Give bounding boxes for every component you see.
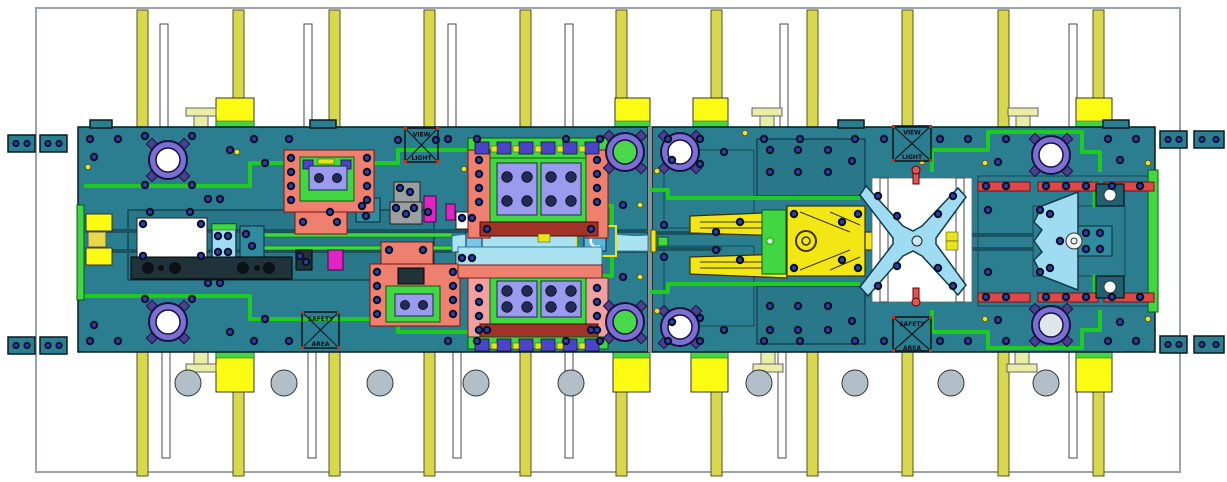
bolt [451, 284, 455, 288]
die-button-hole [566, 172, 576, 182]
roller [271, 370, 297, 396]
bolt [1004, 295, 1008, 299]
bolt [396, 138, 400, 142]
bolt [289, 198, 293, 202]
bolt [621, 275, 625, 279]
sensor-dot [767, 238, 774, 245]
bolt [228, 148, 232, 152]
tab-bolt [25, 344, 29, 348]
bolt [1004, 184, 1008, 188]
pillar [807, 10, 818, 127]
mount-tab [8, 337, 35, 354]
bolt [1004, 137, 1008, 141]
bolt [206, 197, 210, 201]
die-tab [563, 142, 577, 154]
pillar [998, 10, 1009, 127]
bolt [446, 137, 450, 141]
tab-bolt [25, 142, 29, 146]
die-tab-spacer [557, 343, 563, 349]
t-clamp [194, 116, 208, 128]
roller [463, 370, 489, 396]
bolt [662, 255, 666, 259]
tab-bolt [1214, 343, 1218, 347]
guide-bar [448, 24, 456, 127]
bolt [895, 264, 899, 268]
t-clamp [1015, 352, 1029, 365]
bolt [796, 170, 800, 174]
t-clamp [760, 116, 774, 128]
bolt [1058, 239, 1062, 243]
bolt [698, 316, 702, 320]
bolt [404, 212, 408, 216]
bolt [840, 220, 844, 224]
bolt [1106, 137, 1110, 141]
bolt [92, 155, 96, 159]
tab-bolt [14, 142, 18, 146]
bolt [365, 170, 369, 174]
tab-bolt [1177, 343, 1181, 347]
bolt [1134, 137, 1138, 141]
bolt [1084, 231, 1088, 235]
pillar [520, 352, 531, 476]
bolt [1138, 295, 1142, 299]
marker-text: SAFETY [308, 316, 334, 323]
bolt [252, 339, 256, 343]
bolt [850, 159, 854, 163]
lifter-hole [263, 262, 275, 274]
bolt [148, 210, 152, 214]
bolt [360, 204, 364, 208]
bolt [289, 156, 293, 160]
bolt [1064, 295, 1068, 299]
bolt [250, 244, 254, 248]
tab-bolt [1214, 138, 1218, 142]
bolt [768, 304, 772, 308]
tab-bolt [57, 344, 61, 348]
tab-bolt [1166, 343, 1170, 347]
bolt [768, 328, 772, 332]
edge-tab [838, 120, 864, 128]
die-tab [541, 339, 555, 351]
bolt [365, 198, 369, 202]
entry-guide [88, 232, 106, 247]
dowel-dot [982, 316, 988, 322]
bolt [1134, 339, 1138, 343]
bolt [876, 194, 880, 198]
bolt [460, 256, 464, 260]
bolt [826, 304, 830, 308]
t-clamp [1008, 108, 1038, 116]
lifter-hole [254, 265, 260, 271]
bolt [768, 170, 772, 174]
stop-block-strip [615, 121, 650, 127]
bolt [1084, 247, 1088, 251]
bolt [936, 212, 940, 216]
bushing-bore [613, 140, 637, 164]
bolt [190, 297, 194, 301]
bolt [762, 137, 766, 141]
guide-bar [162, 352, 170, 458]
bolt [141, 254, 145, 258]
bolt [365, 184, 369, 188]
bolt [936, 266, 940, 270]
bolt [826, 328, 830, 332]
bolt [796, 328, 800, 332]
bushing-bore [156, 310, 180, 334]
die-tab [519, 142, 533, 154]
green-edge-bar [77, 205, 84, 300]
bolt [141, 222, 145, 226]
bolt [564, 339, 568, 343]
die-button-hole [522, 286, 532, 296]
bolt [190, 134, 194, 138]
die-tab-spacer [535, 146, 541, 152]
bolt [670, 320, 674, 324]
pillar [137, 352, 148, 476]
bolt [595, 200, 599, 204]
bolt [470, 216, 474, 220]
die-tab-spacer [557, 146, 563, 152]
bolt [143, 134, 147, 138]
bolt [477, 314, 481, 318]
bolt [477, 286, 481, 290]
bolt [768, 148, 772, 152]
bolt [252, 137, 256, 141]
roller [746, 370, 772, 396]
bolt [1118, 158, 1122, 162]
bolt [1038, 208, 1042, 212]
dowel-dot [982, 160, 988, 166]
roller [175, 370, 201, 396]
bolt [188, 210, 192, 214]
bolt [738, 220, 742, 224]
bolt [143, 297, 147, 301]
entry-plate [137, 218, 207, 262]
bolt [421, 248, 425, 252]
bolt [595, 186, 599, 190]
bolt [477, 300, 481, 304]
die-button-hole [502, 286, 512, 296]
bolt [301, 220, 305, 224]
bolt [876, 284, 880, 288]
tab-bolt [46, 142, 50, 146]
bolt [762, 339, 766, 343]
bolt [621, 203, 625, 207]
bolt [1110, 184, 1114, 188]
guide-bar [565, 24, 573, 127]
tab-bolt [1177, 138, 1181, 142]
bolt [1084, 295, 1088, 299]
bolt [218, 281, 222, 285]
bolt [595, 286, 599, 290]
stop-block-strip [691, 352, 728, 358]
bolt [218, 197, 222, 201]
mount-tab [8, 135, 35, 152]
bolt [446, 339, 450, 343]
bolt [1110, 295, 1114, 299]
bushing-bore [1039, 143, 1063, 167]
bolt [1044, 295, 1048, 299]
bolt [88, 339, 92, 343]
tab-bolt [1166, 138, 1170, 142]
die-button-hole [522, 302, 532, 312]
guide-bar [308, 352, 316, 458]
die-button-hole [566, 286, 576, 296]
die-button-hole [546, 172, 556, 182]
bolt [1044, 184, 1048, 188]
bolt [698, 162, 702, 166]
pillar [424, 352, 435, 476]
bolt [938, 339, 942, 343]
bolt [88, 137, 92, 141]
bolt [375, 312, 379, 316]
spring-pin [912, 288, 920, 306]
bolt [666, 339, 670, 343]
bolt [1048, 266, 1052, 270]
die-tab-spacer [579, 343, 585, 349]
die-tab [497, 142, 511, 154]
bolt [595, 158, 599, 162]
bolt [226, 234, 230, 238]
bolt [216, 250, 220, 254]
mount-tab [40, 337, 67, 354]
bolt [289, 184, 293, 188]
bolt [840, 258, 844, 262]
bolt [589, 227, 593, 231]
bushing-bore [1039, 313, 1063, 337]
bolt [1038, 270, 1042, 274]
bolt [412, 206, 416, 210]
bolt [398, 186, 402, 190]
die-assembly-drawing: VIEW LIGHT VIEW LIGHT SAFETY AREA SAFETY… [0, 0, 1227, 482]
bolt [595, 328, 599, 332]
stop-block-strip [613, 352, 650, 358]
spring-pin [912, 166, 920, 184]
bolt [1138, 184, 1142, 188]
t-clamp [1007, 364, 1037, 372]
lifter-hole [142, 262, 154, 274]
bolt [408, 190, 412, 194]
bolt [895, 214, 899, 218]
cad-viewport[interactable]: VIEW LIGHT VIEW LIGHT SAFETY AREA SAFETY… [0, 0, 1227, 482]
bolt [722, 328, 726, 332]
bolt [738, 258, 742, 262]
roller [558, 370, 584, 396]
bolt [335, 220, 339, 224]
bolt [853, 339, 857, 343]
tab-bolt [1200, 138, 1204, 142]
bolt [722, 150, 726, 154]
marker-text: LIGHT [902, 154, 923, 161]
marker-text: VIEW [413, 132, 431, 139]
dowel-dot [1145, 160, 1151, 166]
part-tip [651, 230, 656, 252]
roller [367, 370, 393, 396]
bolt [984, 184, 988, 188]
die-button-hole [502, 196, 512, 206]
dowel-dot [654, 168, 660, 174]
roller [842, 370, 868, 396]
bolt [143, 183, 147, 187]
bolt [375, 284, 379, 288]
lifter-hole [158, 265, 164, 271]
die-tab-spacer [579, 146, 585, 152]
bolt [984, 295, 988, 299]
bolt [966, 137, 970, 141]
pillar [137, 10, 148, 127]
stop-block-strip [693, 121, 728, 127]
pillar [807, 352, 818, 476]
mount-tab [40, 135, 67, 152]
guide-bar [160, 24, 168, 127]
pillar [424, 10, 435, 127]
roller [1033, 370, 1059, 396]
die-tab [519, 339, 533, 351]
tab-bolt [57, 142, 61, 146]
bolt [938, 137, 942, 141]
cam-pivot [912, 236, 922, 246]
marker-text: VIEW [903, 130, 921, 137]
stop-block-strip [1076, 352, 1112, 358]
bolt [986, 270, 990, 274]
bolt [477, 158, 481, 162]
bolt [598, 339, 602, 343]
die-tab-spacer [491, 146, 497, 152]
dowel-dot [85, 164, 91, 170]
bolt [475, 137, 479, 141]
bolt [328, 210, 332, 214]
edge-tab [1103, 120, 1129, 128]
bolt [199, 254, 203, 258]
bolt [796, 148, 800, 152]
bolt [477, 172, 481, 176]
bolt [304, 260, 308, 264]
bolt [714, 230, 718, 234]
guide-bar [304, 24, 312, 127]
bolt [116, 137, 120, 141]
bolt [206, 281, 210, 285]
die-button-hole [566, 302, 576, 312]
bolt [298, 254, 302, 258]
bolt [951, 194, 955, 198]
bolt [850, 319, 854, 323]
lifter-hole [237, 262, 249, 274]
bolt [856, 212, 860, 216]
bolt [287, 339, 291, 343]
bolt [477, 328, 481, 332]
marker-text: AREA [903, 345, 921, 352]
pillar [329, 352, 340, 476]
bolt [698, 137, 702, 141]
bolt [595, 172, 599, 176]
pillar [902, 352, 913, 476]
stop-block-strip [216, 121, 254, 127]
bushing-bore [613, 310, 637, 334]
pillar [520, 10, 531, 127]
tab-bolt [46, 344, 50, 348]
bolt [228, 330, 232, 334]
die-button-hole [546, 286, 556, 296]
bolt [796, 304, 800, 308]
bolt [199, 222, 203, 226]
dowel-dot [742, 130, 748, 136]
bolt [714, 248, 718, 252]
tab-bolt [14, 344, 18, 348]
die-button-hole [522, 172, 532, 182]
bolt [477, 200, 481, 204]
bolt [792, 212, 796, 216]
bolt [598, 137, 602, 141]
bolt [387, 248, 391, 252]
bolt [460, 216, 464, 220]
dowel-dot [654, 308, 660, 314]
marker-text: LIGHT [411, 155, 432, 162]
bolt [670, 158, 674, 162]
bolt [589, 328, 593, 332]
edge-tab [90, 120, 112, 128]
bushing-bore [156, 148, 180, 172]
die-tab-spacer [535, 343, 541, 349]
bolt [798, 137, 802, 141]
bolt [882, 339, 886, 343]
t-clamp [194, 352, 208, 365]
mount-tab [1160, 131, 1187, 148]
bolt [966, 339, 970, 343]
bolt [1048, 212, 1052, 216]
bolt [451, 298, 455, 302]
bolt [287, 137, 291, 141]
die-tab-spacer [491, 343, 497, 349]
dowel-dot [234, 149, 240, 155]
bolt [1098, 231, 1102, 235]
bushing-small [1066, 233, 1082, 249]
lifter-hole [169, 262, 181, 274]
bolt [475, 339, 479, 343]
die-tab [585, 142, 599, 154]
die-tab [475, 142, 489, 154]
bolt [826, 170, 830, 174]
dowel-dot [637, 274, 643, 280]
bolt [996, 318, 1000, 322]
bolt [798, 339, 802, 343]
bolt [882, 137, 886, 141]
bolt [92, 323, 96, 327]
bolt [375, 270, 379, 274]
bolt [451, 312, 455, 316]
die-button-hole [502, 172, 512, 182]
t-clamp [761, 352, 775, 365]
bolt [698, 339, 702, 343]
bolt [190, 183, 194, 187]
die-tab-spacer [513, 343, 519, 349]
bolt [263, 317, 267, 321]
bolt [856, 266, 860, 270]
die-button-hole [522, 196, 532, 206]
bolt [485, 227, 489, 231]
bolt [666, 137, 670, 141]
die-tab [497, 339, 511, 351]
bolt [1098, 247, 1102, 251]
t-clamp [752, 108, 782, 116]
bolt [595, 300, 599, 304]
bolt [986, 208, 990, 212]
tab-bolt [1200, 343, 1204, 347]
bolt [244, 232, 248, 236]
bolt [1106, 339, 1110, 343]
guide-bar [453, 352, 461, 458]
roller [938, 370, 964, 396]
marker-text: AREA [311, 341, 329, 348]
